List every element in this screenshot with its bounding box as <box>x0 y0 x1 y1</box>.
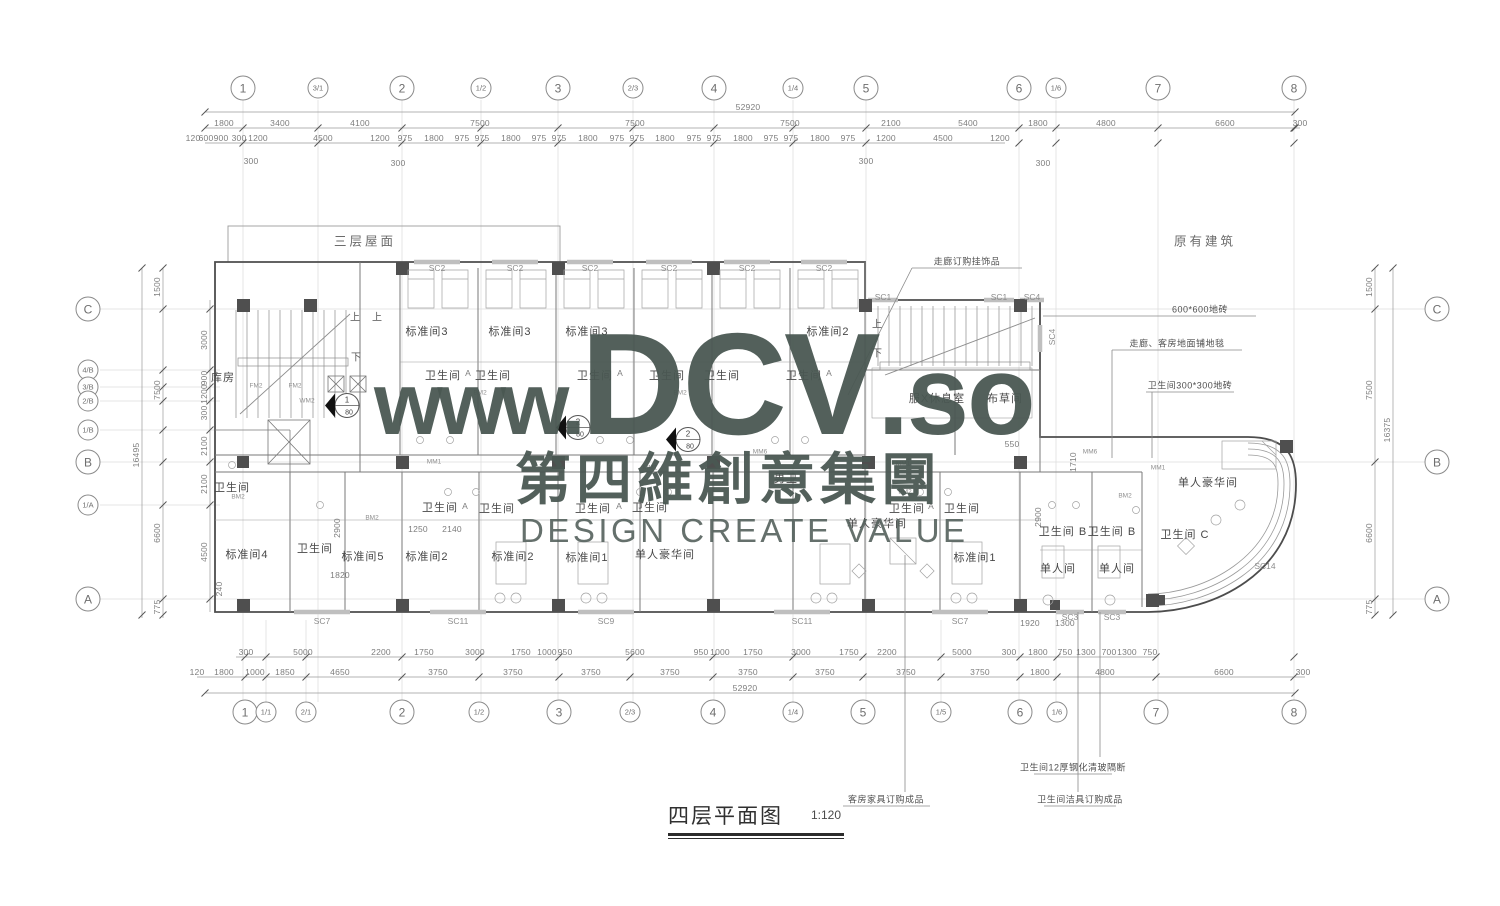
dim-label: 750 <box>1058 647 1073 657</box>
dim-label: 52920 <box>733 683 758 693</box>
dim-label: 52920 <box>736 102 761 112</box>
door-tag-MM1: MM1 <box>1151 465 1165 472</box>
grid-bubble-left-B: B <box>76 450 101 475</box>
watermark-chinese: 第四維創意集團 <box>515 452 942 508</box>
dim-label: 3750 <box>738 667 758 677</box>
grid-bubble-right-C: C <box>1425 297 1450 322</box>
plan-dim-label: 2140 <box>442 524 462 534</box>
plan-dim-label: 240 <box>214 582 224 597</box>
window-tag-SC3: SC3 <box>1104 612 1121 622</box>
dim-label: 2100 <box>199 474 209 494</box>
room-label: 单人间 <box>1040 560 1076 576</box>
dim-label: 4100 <box>350 118 370 128</box>
dim-label: 6600 <box>1214 667 1234 677</box>
dim-label: 1200 <box>248 133 268 143</box>
title-underline-thick <box>668 833 844 836</box>
window-tag-SC3: SC3 <box>1062 612 1079 622</box>
room-label: 标准间2 <box>491 548 534 564</box>
grid-bubble-bottom-2/1: 2/1 <box>296 702 317 723</box>
grid-bubble-bottom-5: 5 <box>851 700 876 725</box>
plan-dim-label: 1710 <box>1068 452 1078 472</box>
dim-label: 1800 <box>501 133 521 143</box>
door-tag-WM2: WM2 <box>299 398 314 405</box>
dim-label: 3750 <box>503 667 523 677</box>
grid-bubble-top-2: 2 <box>390 76 415 101</box>
grid-bubble-bottom-7: 7 <box>1144 700 1169 725</box>
dim-label: 1000 <box>710 647 730 657</box>
dim-label: 6600 <box>1215 118 1235 128</box>
room-label: 标准间5 <box>341 548 384 564</box>
dim-label: 1300 <box>1117 647 1137 657</box>
dim-label: 6600 <box>152 523 162 543</box>
window-tag-SC7: SC7 <box>952 616 969 626</box>
dim-label: 1200 <box>199 384 209 404</box>
dim-label: 975 <box>455 133 470 143</box>
drawing-title: 四层平面图 <box>668 800 783 830</box>
grid-bubble-bottom-1/5: 1/5 <box>931 702 952 723</box>
door-tag-MM6: MM6 <box>1083 449 1097 456</box>
dim-label: 300 <box>244 156 259 166</box>
window-tag-SC11: SC11 <box>792 616 813 626</box>
grid-bubble-top-4: 4 <box>702 76 727 101</box>
dim-label: 700 <box>1102 647 1117 657</box>
room-label: 单人间 <box>1099 560 1135 576</box>
dim-label: 7500 <box>1364 380 1374 400</box>
annotation: 卫生间300*300地砖 <box>1148 379 1233 392</box>
grid-bubble-left-1/A: 1/A <box>78 495 99 516</box>
door-tag-BM2: BM2 <box>1118 493 1131 500</box>
grid-bubble-top-6: 6 <box>1007 76 1032 101</box>
svg-text:1: 1 <box>345 396 350 405</box>
dim-label: 3750 <box>581 667 601 677</box>
dim-label: 600 <box>199 133 214 143</box>
dim-label: 2100 <box>881 118 901 128</box>
watermark-so: .so <box>878 340 1034 452</box>
grid-bubble-bottom-1: 1 <box>233 700 258 725</box>
dim-label: 3750 <box>970 667 990 677</box>
dim-label: 1800 <box>1030 667 1050 677</box>
dim-label: 300 <box>232 133 247 143</box>
door-tag-BM2: BM2 <box>231 494 244 501</box>
dim-label: 300 <box>859 156 874 166</box>
grid-bubble-bottom-1/2: 1/2 <box>469 702 490 723</box>
dim-label: 1850 <box>275 667 295 677</box>
dim-label: 1800 <box>214 118 234 128</box>
dim-label: 3000 <box>199 330 209 350</box>
dim-label: 5000 <box>293 647 313 657</box>
dim-label: 1800 <box>655 133 675 143</box>
dim-label: 975 <box>707 133 722 143</box>
dim-label: 3750 <box>815 667 835 677</box>
dim-label: 6600 <box>1364 523 1374 543</box>
bathroom-label: 卫生间 <box>297 540 333 556</box>
dim-label: 1000 <box>245 667 265 677</box>
grid-bubble-top-3/1: 3/1 <box>308 78 329 99</box>
dim-label: 2100 <box>199 436 209 456</box>
dim-label: 975 <box>552 133 567 143</box>
svg-text:80: 80 <box>345 410 353 417</box>
floor-plan-drawing: www.DCV.so 第四維創意集團 DESIGN CREATE VALUE 5… <box>0 0 1500 906</box>
dim-label: 1750 <box>839 647 859 657</box>
curtain-wall-curve <box>1148 443 1290 606</box>
grid-bubble-bottom-1/4: 1/4 <box>783 702 804 723</box>
grid-bubble-left-2/B: 2/B <box>78 391 99 412</box>
annotation: 卫生间洁具订购成品 <box>1037 793 1123 806</box>
plan-dim-label: 1820 <box>330 570 350 580</box>
window-tag-SC1: SC1 <box>875 292 892 302</box>
dim-label: 16375 <box>1382 418 1392 443</box>
dim-label: 1200 <box>876 133 896 143</box>
bathroom-label: 卫生间 <box>422 499 458 515</box>
bathroom-label: 卫生间 C <box>1161 526 1210 542</box>
window-tag-SC2: SC2 <box>816 263 833 273</box>
dim-label: 1800 <box>214 667 234 677</box>
window-tag-SC4: SC4 <box>1024 292 1041 302</box>
dim-label: 1800 <box>733 133 753 143</box>
bathroom-label: 卫生间 B <box>1039 523 1087 539</box>
grid-bubble-bottom-2/3: 2/3 <box>620 702 641 723</box>
dim-label: 975 <box>630 133 645 143</box>
window-tag-SC7: SC7 <box>314 616 331 626</box>
dim-label: 2200 <box>371 647 391 657</box>
grid-bubble-left-A: A <box>76 587 101 612</box>
window-tag-SC2: SC2 <box>507 263 524 273</box>
plan-dim-label: 2900 <box>332 518 342 538</box>
watermark-url: www.DCV.so <box>374 312 1034 457</box>
grid-bubble-bottom-6: 6 <box>1008 700 1033 725</box>
bathroom-label: 卫生间 B <box>1088 523 1136 539</box>
dim-label: 4800 <box>1095 667 1115 677</box>
room-label: 标准间4 <box>225 546 268 562</box>
grid-bubble-top-3: 3 <box>546 76 571 101</box>
dim-label: 1800 <box>578 133 598 143</box>
dim-label: 750 <box>1143 647 1158 657</box>
area-label: 三层屋面 <box>334 231 396 250</box>
window-tag-SC1: SC1 <box>991 292 1008 302</box>
grid-bubble-top-1/2: 1/2 <box>471 78 492 99</box>
dim-label: 975 <box>764 133 779 143</box>
room-label: 单人豪华间 <box>1178 474 1238 490</box>
window-tag-SC2: SC2 <box>582 263 599 273</box>
title-block: 四层平面图1:120 <box>668 800 844 839</box>
dim-label: 300 <box>391 158 406 168</box>
annotation: 600*600地砖 <box>1172 303 1228 316</box>
grid-bubble-left-1/B: 1/B <box>78 420 99 441</box>
dim-label: 5400 <box>958 118 978 128</box>
dim-label: 300 <box>199 406 209 421</box>
grid-bubble-top-1/6: 1/6 <box>1046 78 1067 99</box>
grid-bubble-bottom-1/1: 1/1 <box>256 702 277 723</box>
room-label: 库房 <box>211 369 235 385</box>
annotation: 客房家具订购成品 <box>848 793 924 806</box>
annotation: 走廊订购挂饰品 <box>934 255 1001 268</box>
window-tag-SC4: SC4 <box>1047 329 1057 346</box>
dim-label: 1750 <box>511 647 531 657</box>
title-underline-thin <box>668 838 844 839</box>
dim-label: 300 <box>1002 647 1017 657</box>
grid-bubble-right-B: B <box>1425 450 1450 475</box>
dim-label: 1800 <box>424 133 444 143</box>
grid-bubble-top-5: 5 <box>854 76 879 101</box>
dim-label: 5600 <box>625 647 645 657</box>
dim-label: 4500 <box>313 133 333 143</box>
door-tag-FM2: FM2 <box>289 383 302 390</box>
dim-label: 975 <box>475 133 490 143</box>
grid-bubble-bottom-3: 3 <box>547 700 572 725</box>
dim-label: 4500 <box>199 542 209 562</box>
window-tag-SC11: SC11 <box>448 616 469 626</box>
dim-label: 775 <box>1364 600 1374 615</box>
watermark-www: www. <box>374 360 581 448</box>
door-tag-FM2: FM2 <box>250 383 263 390</box>
window-tag-SC14: SC14 <box>1254 561 1275 571</box>
dim-label: 300 <box>1296 667 1311 677</box>
dim-label: 975 <box>398 133 413 143</box>
dim-label: 300 <box>1036 158 1051 168</box>
dim-label: 2200 <box>877 647 897 657</box>
annotation: 走廊、客房地面铺地毯 <box>1129 337 1224 350</box>
grid-bubble-bottom-8: 8 <box>1282 700 1307 725</box>
door-tag-MM1: MM1 <box>427 459 441 466</box>
annotation: 卫生间12厚钢化清玻隔断 <box>1020 761 1126 774</box>
dim-label: 4650 <box>330 667 350 677</box>
door-tag-BM2: BM2 <box>365 515 378 522</box>
dim-label: 1750 <box>743 647 763 657</box>
dim-label: 7500 <box>780 118 800 128</box>
dim-label: 975 <box>784 133 799 143</box>
dim-label: 975 <box>841 133 856 143</box>
window-tag-SC2: SC2 <box>429 263 446 273</box>
dim-label: 4800 <box>1096 118 1116 128</box>
dim-label: 1300 <box>1076 647 1096 657</box>
grid-bubble-top-2/3: 2/3 <box>623 78 644 99</box>
dim-label: 1800 <box>1028 118 1048 128</box>
dim-label: 1800 <box>1028 647 1048 657</box>
dim-label: 3750 <box>428 667 448 677</box>
dim-label: 975 <box>532 133 547 143</box>
dim-label: 975 <box>610 133 625 143</box>
dim-label: 3000 <box>465 647 485 657</box>
grid-bubble-top-7: 7 <box>1146 76 1171 101</box>
bathroom-letter: A <box>462 501 468 511</box>
dim-label: 1500 <box>152 277 162 297</box>
dim-label: 900 <box>214 133 229 143</box>
room-label: 标准间1 <box>953 549 996 565</box>
window-tag-SC2: SC2 <box>661 263 678 273</box>
dim-label: 975 <box>687 133 702 143</box>
dim-label: 3000 <box>791 647 811 657</box>
section-marker: 180 <box>325 389 365 428</box>
grid-bubble-top-1/4: 1/4 <box>783 78 804 99</box>
grid-bubble-bottom-2: 2 <box>390 700 415 725</box>
grid-bubble-top-1: 1 <box>231 76 256 101</box>
dim-label: 1200 <box>990 133 1010 143</box>
dim-label: 16495 <box>131 443 141 468</box>
bathroom-label: 卫生间 <box>479 500 515 516</box>
room-label: 标准间1 <box>565 549 608 565</box>
dim-label: 120 <box>190 667 205 677</box>
plan-dim-label: 1250 <box>408 524 428 534</box>
dim-label: 300 <box>1293 118 1308 128</box>
drawing-scale: 1:120 <box>811 808 841 822</box>
plan-dim-label: 1920 <box>1020 618 1040 628</box>
dim-label: 5000 <box>952 647 972 657</box>
dim-label: 3750 <box>896 667 916 677</box>
watermark-brand: DCV <box>581 312 878 457</box>
grid-bubble-right-A: A <box>1425 587 1450 612</box>
dim-label: 950 <box>558 647 573 657</box>
stair-direction-label: 下 <box>351 349 361 364</box>
dim-label: 7500 <box>152 380 162 400</box>
dim-label: 1000 <box>537 647 557 657</box>
grid-bubble-bottom-1/6: 1/6 <box>1047 702 1068 723</box>
dim-label: 3750 <box>660 667 680 677</box>
window-tag-SC9: SC9 <box>598 616 615 626</box>
grid-bubble-bottom-4: 4 <box>701 700 726 725</box>
watermark-slogan: DESIGN CREATE VALUE <box>520 514 969 547</box>
stair-direction-label: 上 <box>350 309 360 324</box>
grid-bubble-top-8: 8 <box>1282 76 1307 101</box>
dim-label: 1200 <box>370 133 390 143</box>
dim-label: 7500 <box>470 118 490 128</box>
room-label: 标准间2 <box>405 548 448 564</box>
dim-label: 1500 <box>1364 277 1374 297</box>
dim-label: 300 <box>239 647 254 657</box>
dim-label: 1800 <box>810 133 830 143</box>
dim-label: 775 <box>152 600 162 615</box>
dim-label: 950 <box>694 647 709 657</box>
dim-label: 7500 <box>625 118 645 128</box>
dim-label: 4500 <box>933 133 953 143</box>
window-tag-SC2: SC2 <box>739 263 756 273</box>
area-label: 原有建筑 <box>1174 231 1236 250</box>
grid-bubble-left-C: C <box>76 297 101 322</box>
dim-label: 3400 <box>270 118 290 128</box>
dim-label: 1750 <box>414 647 434 657</box>
